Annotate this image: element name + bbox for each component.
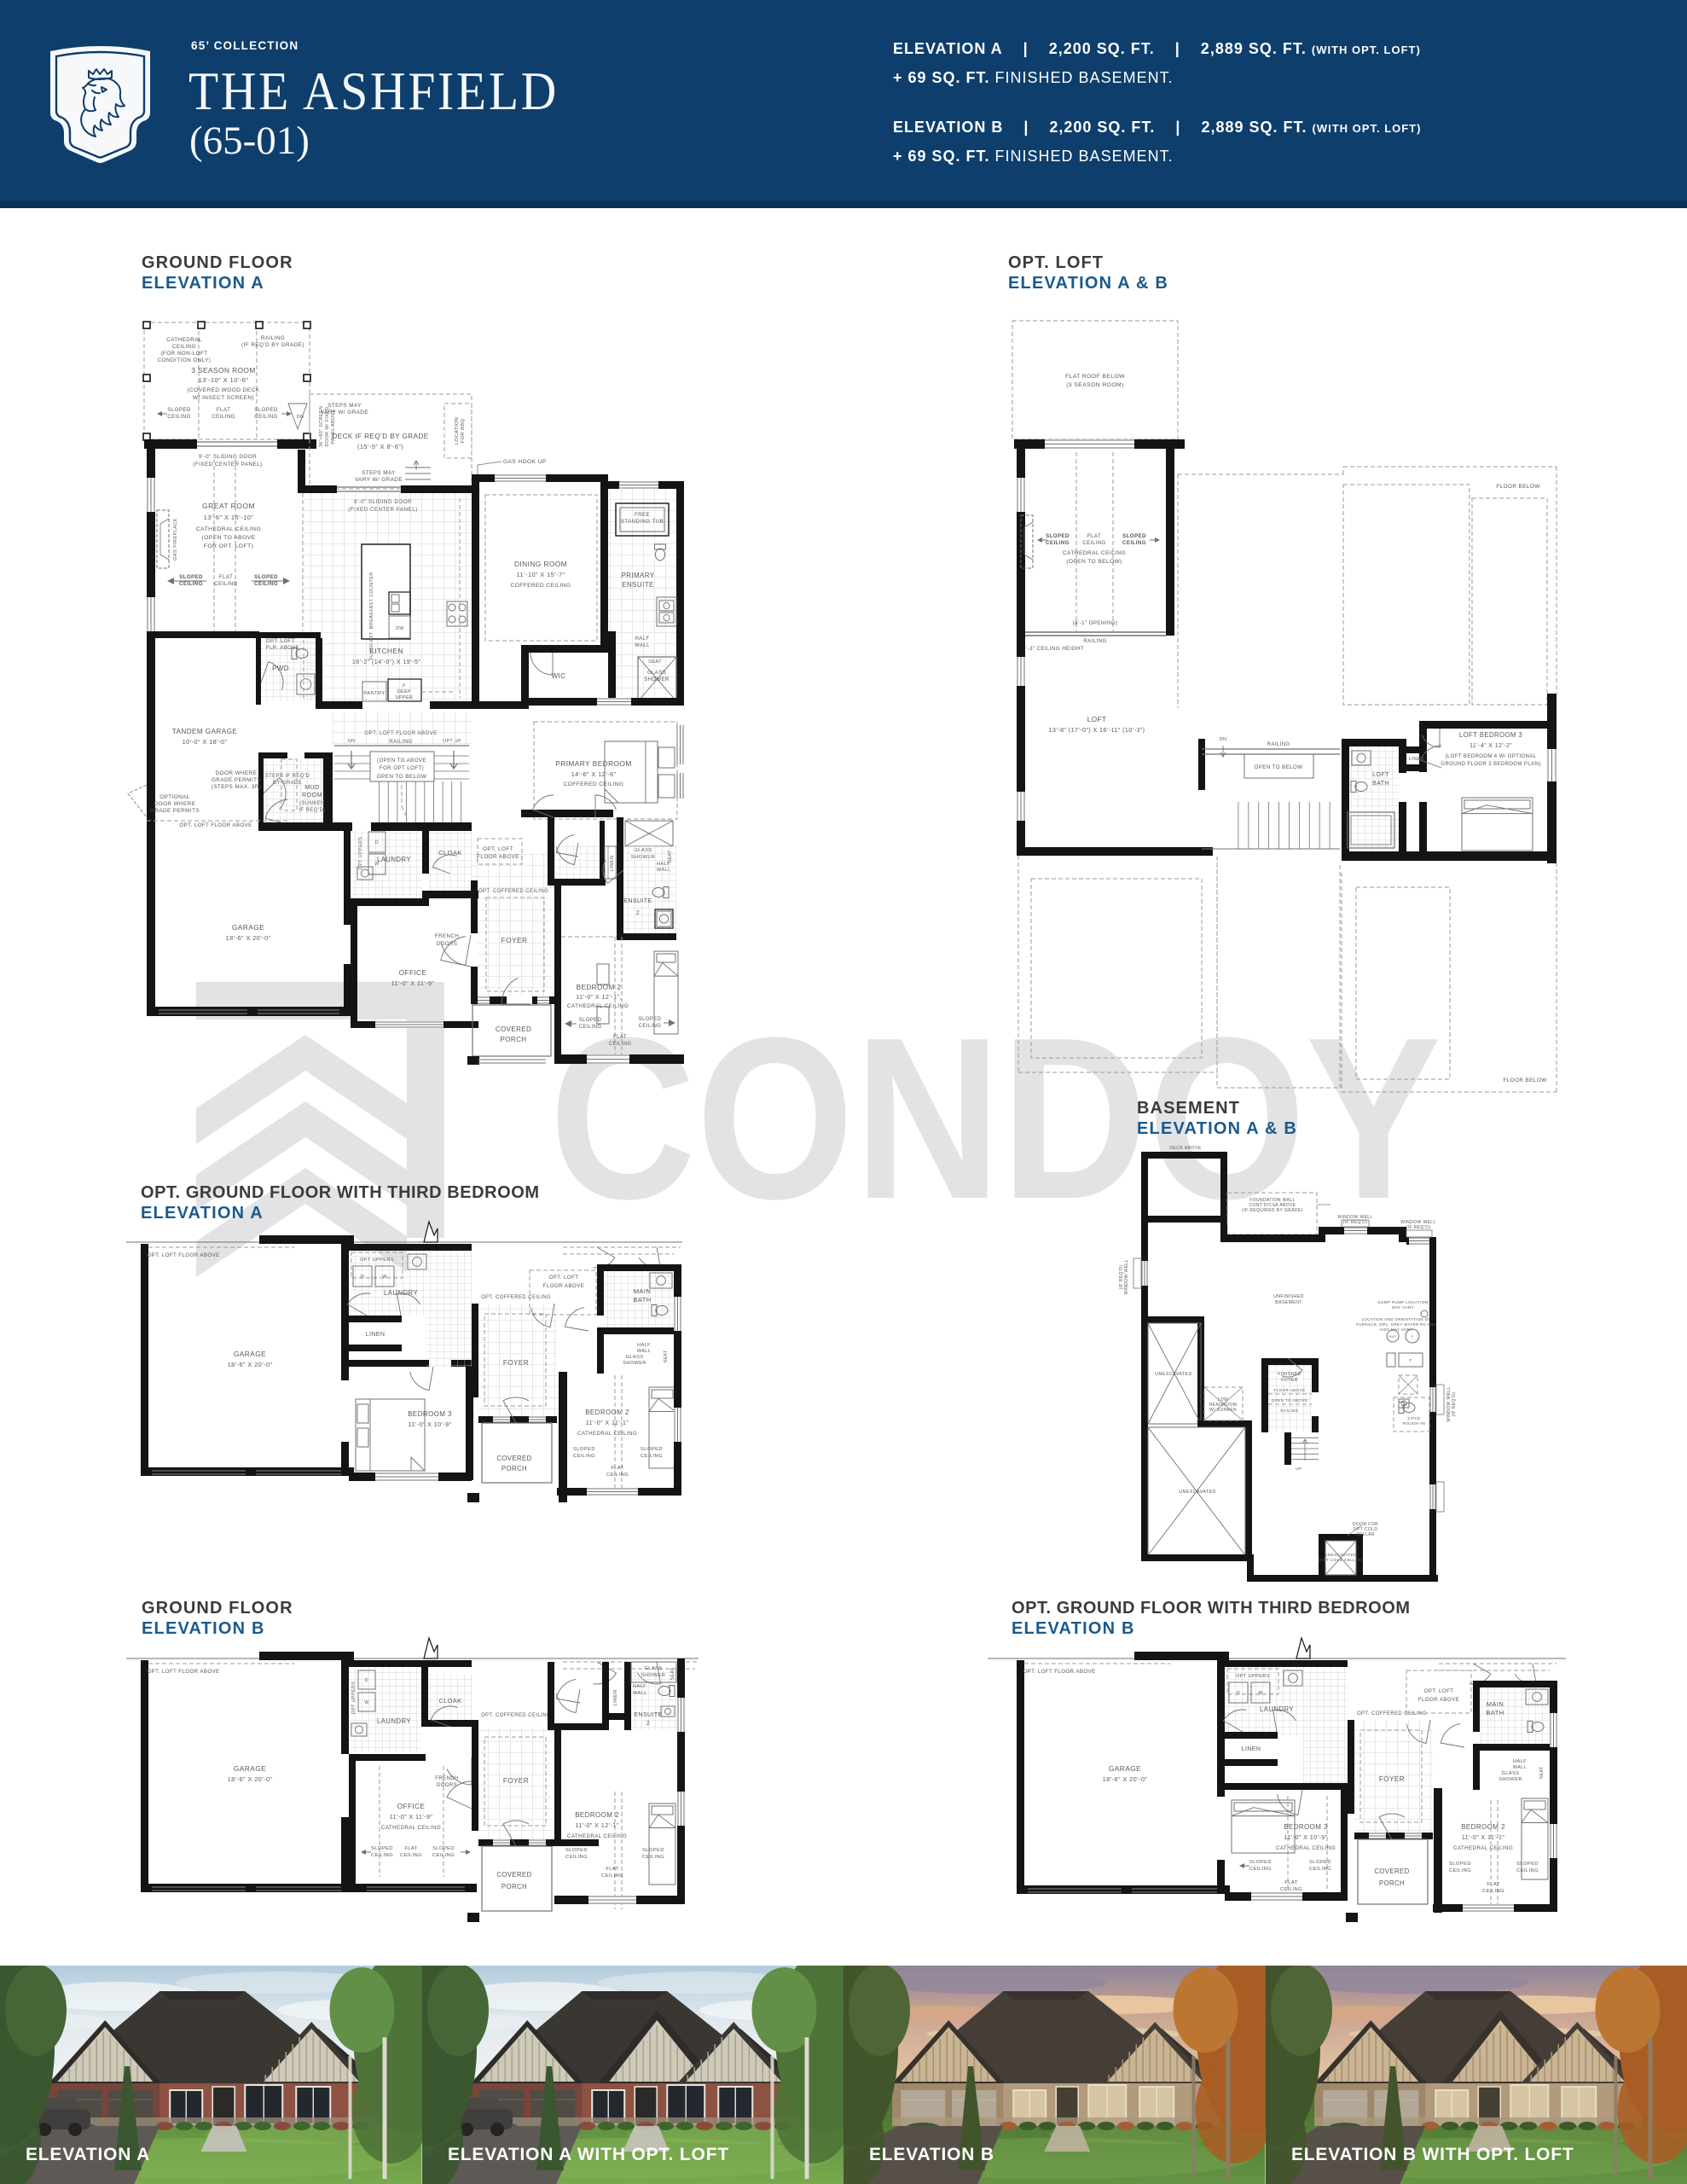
- svg-text:SLOPED: SLOPED: [432, 1846, 455, 1851]
- svg-text:CATHEDRAL CEILING: CATHEDRAL CEILING: [1453, 1845, 1513, 1851]
- svg-text:W: W: [1258, 1691, 1263, 1696]
- svg-text:COVERED: COVERED: [496, 1871, 531, 1879]
- svg-text:FOYER: FOYER: [1379, 1775, 1405, 1783]
- svg-text:PWD: PWD: [272, 665, 289, 672]
- svg-text:16’-2” (14’-0”) X 19’-5”: 16’-2” (14’-0”) X 19’-5”: [352, 658, 421, 665]
- svg-text:SLOPED: SLOPED: [642, 1848, 664, 1853]
- svg-text:CEILING: CEILING: [1449, 1868, 1471, 1873]
- svg-text:3 SEASON ROOM: 3 SEASON ROOM: [191, 366, 255, 375]
- svg-text:BATH: BATH: [1486, 1709, 1504, 1716]
- svg-text:PANTRY: PANTRY: [363, 691, 385, 696]
- svg-text:OPT UPPERS: OPT UPPERS: [351, 1682, 357, 1715]
- svg-text:(STEPS MAX. 3R): (STEPS MAX. 3R): [212, 784, 262, 790]
- svg-text:DOOR WHERE: DOOR WHERE: [216, 770, 258, 776]
- svg-text:11’-0” X 11’-1”: 11’-0” X 11’-1”: [1462, 1833, 1505, 1841]
- svg-text:SLOPED: SLOPED: [167, 407, 191, 413]
- svg-text:FLAT ROOF BELOW: FLAT ROOF BELOW: [1065, 374, 1125, 380]
- svg-text:SLOPED: SLOPED: [565, 1848, 588, 1853]
- svg-text:(OPEN TO ABOVE: (OPEN TO ABOVE: [377, 758, 426, 764]
- svg-text:OPEN TO ABOVE: OPEN TO ABOVE: [1272, 1398, 1308, 1403]
- svg-text:SHOWER: SHOWER: [641, 1673, 666, 1678]
- svg-text:(OPT COLD CELLAR): (OPT COLD CELLAR): [1319, 1558, 1363, 1562]
- svg-text:GREAT ROOM: GREAT ROOM: [202, 502, 255, 510]
- svg-text:BEDROOM 2: BEDROOM 2: [575, 1811, 619, 1819]
- svg-text:HWT: HWT: [1388, 1335, 1397, 1339]
- svg-text:18’-6” X 20’-0”: 18’-6” X 20’-0”: [228, 1775, 273, 1783]
- svg-text:UNEXCAVATED: UNEXCAVATED: [1179, 1490, 1216, 1495]
- svg-text:CELLAR: CELLAR: [1356, 1532, 1375, 1537]
- svg-text:FLOOR BELOW: FLOOR BELOW: [1496, 484, 1540, 490]
- svg-text:DEEP: DEEP: [397, 689, 411, 694]
- svg-text:W/ INSECT SCREEN): W/ INSECT SCREEN): [193, 395, 254, 401]
- svg-text:CEILING: CEILING: [1482, 1889, 1504, 1894]
- svg-text:W/ SUNKEN: W/ SUNKEN: [1209, 1408, 1237, 1413]
- svg-text:CEILING: CEILING: [1046, 540, 1070, 546]
- svg-text:CEILING: CEILING: [212, 414, 235, 420]
- svg-text:OPT. LOFT FLOOR ABOVE: OPT. LOFT FLOOR ABOVE: [147, 1669, 219, 1675]
- svg-text:OPEN TO BELOW: OPEN TO BELOW: [1255, 764, 1303, 770]
- svg-text:FURNACE, DRV, GREY WATER RV AN: FURNACE, DRV, GREY WATER RV AND: [1356, 1322, 1436, 1327]
- svg-text:BEDROOM 3: BEDROOM 3: [1284, 1823, 1328, 1831]
- svg-text:CEILING: CEILING: [579, 1025, 602, 1030]
- svg-text:SLOPED: SLOPED: [179, 574, 203, 580]
- svg-text:(IF REQUIRED BY GRADE): (IF REQUIRED BY GRADE): [1242, 1208, 1303, 1213]
- svg-text:F: F: [1409, 1358, 1412, 1362]
- svg-text:CATHEDRAL CEILING: CATHEDRAL CEILING: [1063, 550, 1126, 556]
- svg-text:11’-0” X 11’-9”: 11’-0” X 11’-9”: [391, 979, 435, 987]
- svg-text:SEAT: SEAT: [664, 1350, 669, 1362]
- svg-text:GRADE PERMITS: GRADE PERMITS: [212, 777, 261, 783]
- svg-text:ENSUITE: ENSUITE: [622, 581, 653, 589]
- svg-text:OFFICE: OFFICE: [397, 1803, 426, 1810]
- svg-text:GAS FIREPLACE: GAS FIREPLACE: [173, 518, 178, 561]
- svg-text:RAILING: RAILING: [1083, 638, 1107, 644]
- svg-text:CEILING: CEILING: [642, 1855, 664, 1860]
- svg-text:SHOWER: SHOWER: [623, 1361, 646, 1366]
- svg-text:HALF: HALF: [633, 1684, 646, 1689]
- svg-text:GLASS: GLASS: [1502, 1771, 1520, 1776]
- svg-text:GROUND FLOOR 3 BEDROOM PLAN): GROUND FLOOR 3 BEDROOM PLAN): [1441, 762, 1540, 767]
- svg-text:FREE: FREE: [635, 512, 650, 518]
- svg-text:CEILING: CEILING: [1516, 1868, 1539, 1873]
- svg-text:CEILING: CEILING: [609, 1042, 632, 1047]
- svg-text:SLOPED: SLOPED: [579, 1018, 602, 1023]
- svg-text:FOYER: FOYER: [503, 1359, 529, 1367]
- svg-text:ELEVATION B WITH OPT. LOFT: ELEVATION B WITH OPT. LOFT: [1291, 2145, 1574, 2164]
- svg-text:DINING ROOM: DINING ROOM: [514, 560, 567, 568]
- svg-text:OPT. LOFT: OPT. LOFT: [483, 846, 513, 852]
- svg-text:14’-6” X 12’-6”: 14’-6” X 12’-6”: [571, 770, 617, 778]
- svg-text:36”×80” SCREEN: 36”×80” SCREEN: [319, 406, 324, 447]
- svg-text:CEILING: CEILING: [573, 1454, 595, 1459]
- svg-text:GARAGE: GARAGE: [1109, 1764, 1141, 1773]
- svg-text:OPT. LOFT FLOOR ABOVE: OPT. LOFT FLOOR ABOVE: [179, 822, 252, 828]
- svg-text:SLOPED: SLOPED: [371, 1846, 393, 1851]
- svg-text:FOYER: FOYER: [501, 936, 528, 944]
- svg-text:F: F: [403, 683, 406, 688]
- svg-text:GARAGE: GARAGE: [232, 923, 264, 932]
- svg-text:(IF REQ’D): (IF REQ’D): [1406, 1225, 1431, 1230]
- svg-text:SEAT: SEAT: [1539, 1766, 1545, 1779]
- svg-text:SLOPED: SLOPED: [1449, 1862, 1471, 1867]
- svg-text:BY GRADE: BY GRADE: [273, 781, 302, 786]
- svg-text:FOR OPT LOFT): FOR OPT LOFT): [380, 765, 424, 771]
- svg-text:FLAT: FLAT: [1087, 533, 1101, 539]
- svg-text:(8’-1” OPENING): (8’-1” OPENING): [1073, 620, 1118, 626]
- svg-text:FOR BBQ: FOR BBQ: [461, 418, 466, 443]
- svg-text:CEILING: CEILING: [432, 1853, 455, 1858]
- svg-text:CEILING: CEILING: [179, 581, 203, 587]
- svg-text:WALL: WALL: [1513, 1765, 1528, 1770]
- svg-text:W: W: [364, 1700, 368, 1705]
- svg-text:FLAT: FLAT: [217, 407, 230, 413]
- svg-text:SLOPED: SLOPED: [254, 574, 278, 580]
- svg-text:GLASS: GLASS: [626, 1355, 644, 1360]
- svg-text:CEILING: CEILING: [167, 414, 191, 420]
- svg-text:FOYER: FOYER: [1281, 1378, 1298, 1383]
- svg-text:BATH: BATH: [1372, 781, 1389, 787]
- svg-text:(OPEN TO ABOVE: (OPEN TO ABOVE: [201, 535, 255, 541]
- svg-text:HALF: HALF: [637, 1343, 651, 1348]
- svg-text:LAUNDRY: LAUNDRY: [377, 856, 411, 863]
- svg-text:UPPER: UPPER: [396, 695, 414, 700]
- svg-text:OPT. LOFT: OPT. LOFT: [549, 1275, 579, 1281]
- svg-text:UNEXCAVATED: UNEXCAVATED: [1155, 1372, 1192, 1377]
- svg-text:OPT UPPERS: OPT UPPERS: [1236, 1674, 1270, 1679]
- svg-text:(IF REQ’D): (IF REQ’D): [1452, 1392, 1457, 1417]
- svg-text:(IF REQ’D): (IF REQ’D): [1343, 1220, 1368, 1225]
- svg-text:D: D: [1237, 1691, 1240, 1696]
- svg-text:CATHEDRAL CEILING: CATHEDRAL CEILING: [577, 1431, 637, 1437]
- svg-text:BEDROOM 2: BEDROOM 2: [1461, 1823, 1505, 1831]
- svg-text:GRADE PERMITS: GRADE PERMITS: [150, 808, 200, 814]
- svg-text:OPT. COFFERED CEILING: OPT. COFFERED CEILING: [481, 1295, 551, 1300]
- svg-text:OPT. LOFT FLOOR ABOVE: OPT. LOFT FLOOR ABOVE: [1023, 1669, 1095, 1675]
- svg-text:SLOPED: SLOPED: [1046, 533, 1070, 539]
- svg-text:OPT. LOFT: OPT. LOFT: [1424, 1688, 1454, 1694]
- svg-text:TANDEM GARAGE: TANDEM GARAGE: [172, 728, 238, 735]
- svg-text:COVERED: COVERED: [1374, 1867, 1409, 1875]
- svg-text:ROOM: ROOM: [302, 791, 322, 799]
- svg-text:11’-0” X 10’-9”: 11’-0” X 10’-9”: [1284, 1833, 1327, 1841]
- svg-text:CATHEDRAL CEILING: CATHEDRAL CEILING: [196, 526, 261, 532]
- svg-text:CONDITION ONLY): CONDITION ONLY): [158, 357, 212, 363]
- svg-text:OPT. COFFERED CEILING: OPT. COFFERED CEILING: [481, 1713, 551, 1718]
- svg-text:SLOPED: SLOPED: [639, 1017, 662, 1022]
- svg-text:CEILING: CEILING: [172, 344, 196, 350]
- svg-text:LAUNDRY: LAUNDRY: [1260, 1705, 1294, 1713]
- svg-text:GLASS: GLASS: [647, 671, 666, 676]
- svg-text:HWT MAY VARY: HWT MAY VARY: [1380, 1327, 1412, 1332]
- svg-text:LAUNDRY: LAUNDRY: [384, 1289, 418, 1297]
- svg-text:SEAT: SEAT: [648, 659, 662, 665]
- svg-text:DOOR W/ FIXED: DOOR W/ FIXED: [325, 407, 330, 447]
- svg-text:18’-6” X 20’-0”: 18’-6” X 20’-0”: [226, 934, 271, 942]
- svg-text:SEAT: SEAT: [670, 1667, 675, 1680]
- svg-text:SLOPED: SLOPED: [254, 407, 278, 413]
- svg-text:STANDING TUB: STANDING TUB: [621, 519, 664, 525]
- svg-text:CEILING: CEILING: [1122, 540, 1146, 546]
- svg-text:BATH: BATH: [633, 1296, 651, 1304]
- svg-text:COFFERED CEILING: COFFERED CEILING: [564, 781, 624, 787]
- svg-text:LINEN: LINEN: [1242, 1746, 1261, 1752]
- svg-text:FLUSH EXT. BREAKFAST COUNTER: FLUSH EXT. BREAKFAST COUNTER: [369, 572, 374, 659]
- svg-text:CATHEDRAL: CATHEDRAL: [166, 337, 202, 343]
- svg-text:LOFT: LOFT: [1087, 716, 1107, 723]
- svg-text:(COVERED WOOD DECK: (COVERED WOOD DECK: [187, 387, 259, 393]
- svg-text:LINEN: LINEN: [610, 855, 615, 871]
- svg-text:2: 2: [636, 910, 640, 916]
- svg-text:(SUNKEN: (SUNKEN: [299, 801, 325, 806]
- svg-text:MAY VARY: MAY VARY: [1392, 1305, 1414, 1310]
- svg-text:IF REQ’D): IF REQ’D): [299, 808, 325, 813]
- svg-text:COFFERED CEILING: COFFERED CEILING: [511, 583, 571, 589]
- svg-text:11’-0” X 11’-1”: 11’-0” X 11’-1”: [586, 1419, 629, 1426]
- svg-text:HALF: HALF: [1513, 1759, 1527, 1764]
- svg-text:3-PCE: 3-PCE: [1407, 1416, 1421, 1420]
- svg-text:OPT. COFFERED CEILING: OPT. COFFERED CEILING: [1357, 1711, 1427, 1716]
- svg-text:SLOPED: SLOPED: [1122, 533, 1146, 539]
- svg-text:STEPS MAY: STEPS MAY: [328, 403, 362, 409]
- svg-text:WALL: WALL: [635, 643, 650, 648]
- svg-text:FRENCH: FRENCH: [435, 933, 459, 939]
- svg-text:CEILING: CEILING: [371, 1853, 393, 1858]
- svg-text:2: 2: [646, 1721, 650, 1727]
- svg-text:ELEVATION A WITH OPT. LOFT: ELEVATION A WITH OPT. LOFT: [448, 2145, 729, 2164]
- svg-text:GARAGE: GARAGE: [234, 1764, 266, 1773]
- svg-text:PORCH: PORCH: [501, 1883, 527, 1891]
- svg-text:D: D: [375, 840, 379, 845]
- svg-text:PORCH: PORCH: [1379, 1879, 1405, 1887]
- svg-text:(FOR NON-LOFT: (FOR NON-LOFT: [160, 351, 207, 357]
- svg-text:11’-0” X 10’-9”: 11’-0” X 10’-9”: [408, 1420, 451, 1428]
- svg-text:11’-0” X 12’-1”: 11’-0” X 12’-1”: [575, 1821, 618, 1829]
- svg-text:F: F: [1412, 1334, 1414, 1339]
- svg-text:FLAT: FLAT: [1284, 1880, 1297, 1885]
- svg-text:PRIMARY BEDROOM: PRIMARY BEDROOM: [555, 759, 631, 768]
- svg-text:OPT UPPERS: OPT UPPERS: [358, 837, 363, 870]
- svg-text:D: D: [365, 1678, 368, 1683]
- svg-text:FLAT: FLAT: [613, 1035, 627, 1040]
- svg-text:SLOPED: SLOPED: [1249, 1860, 1272, 1865]
- svg-text:SLOPED: SLOPED: [573, 1447, 595, 1452]
- svg-text:CEILING: CEILING: [641, 1454, 663, 1459]
- svg-text:LINEN: LINEN: [366, 1332, 386, 1338]
- svg-text:PORCH: PORCH: [501, 1036, 527, 1043]
- svg-text:(15’-5” X 8’-6”): (15’-5” X 8’-6”): [357, 443, 403, 450]
- svg-text:(LOFT BEDROOM 4 W/ OPTIONAL: (LOFT BEDROOM 4 W/ OPTIONAL: [1446, 754, 1537, 759]
- svg-text:CEILING: CEILING: [1082, 540, 1106, 546]
- svg-text:WALL: WALL: [637, 1349, 652, 1354]
- svg-text:FLOOR ABOVE: FLOOR ABOVE: [1418, 1697, 1459, 1703]
- svg-text:OPTIONAL: OPTIONAL: [159, 794, 190, 800]
- svg-text:OPT. COFFERED CEILING: OPT. COFFERED CEILING: [478, 889, 548, 894]
- svg-text:8’-3” CEILING HEIGHT: 8’-3” CEILING HEIGHT: [1023, 646, 1084, 652]
- svg-text:FOYER: FOYER: [503, 1777, 529, 1785]
- svg-text:18’-6” X 20’-0”: 18’-6” X 20’-0”: [228, 1361, 273, 1368]
- svg-text:FLOOR ABOVE: FLOOR ABOVE: [1273, 1388, 1305, 1392]
- svg-text:SLOPED: SLOPED: [641, 1447, 663, 1452]
- svg-text:DECK ABOVE: DECK ABOVE: [1169, 1146, 1202, 1151]
- svg-text:COVERED: COVERED: [496, 1455, 531, 1462]
- svg-text:(IF REQ’D BY GRADE): (IF REQ’D BY GRADE): [241, 342, 304, 348]
- svg-text:FLR. ABOVE: FLR. ABOVE: [266, 646, 299, 651]
- svg-text:FLAT: FLAT: [219, 574, 233, 580]
- svg-text:SLOPED: SLOPED: [1309, 1860, 1331, 1865]
- svg-text:CEILING: CEILING: [1280, 1887, 1302, 1892]
- svg-text:DOORS: DOORS: [437, 941, 458, 947]
- svg-text:(FIXED CENTER PANEL): (FIXED CENTER PANEL): [193, 462, 262, 468]
- svg-text:UNFINISHED: UNFINISHED: [1273, 1294, 1304, 1299]
- svg-text:FLAT: FLAT: [1487, 1882, 1499, 1887]
- svg-text:RAILING: RAILING: [261, 335, 285, 341]
- svg-text:DW: DW: [396, 626, 403, 631]
- svg-text:FOR OPT. LOFT): FOR OPT. LOFT): [204, 543, 253, 549]
- svg-text:10’-0” X 18’-0”: 10’-0” X 18’-0”: [183, 738, 228, 746]
- svg-text:OPEN TO BELOW: OPEN TO BELOW: [377, 774, 427, 780]
- svg-text:FLOOR BELOW: FLOOR BELOW: [1503, 1077, 1547, 1083]
- svg-text:MUD: MUD: [304, 783, 320, 791]
- svg-text:GLASS: GLASS: [644, 1666, 662, 1671]
- svg-text:MAIN: MAIN: [634, 1287, 652, 1295]
- svg-text:DN: DN: [1220, 737, 1227, 742]
- svg-text:CEILING: CEILING: [606, 1472, 629, 1478]
- svg-text:CEILING: CEILING: [1249, 1867, 1272, 1872]
- svg-text:CEILING: CEILING: [1309, 1867, 1331, 1872]
- svg-text:OPT. LOFT: OPT. LOFT: [266, 639, 295, 644]
- svg-text:11’-10” X 15’-7”: 11’-10” X 15’-7”: [517, 571, 565, 578]
- svg-text:OFFICE: OFFICE: [399, 969, 427, 977]
- svg-text:FLAT: FLAT: [404, 1846, 417, 1851]
- svg-text:GAS HOOK UP: GAS HOOK UP: [503, 459, 547, 465]
- svg-text:STEPS MAY: STEPS MAY: [362, 470, 396, 476]
- svg-text:VARY W/ GRADE: VARY W/ GRADE: [355, 477, 403, 483]
- svg-text:DOOR WHERE: DOOR WHERE: [154, 801, 196, 807]
- svg-text:STEPS IF REQ’D: STEPS IF REQ’D: [265, 774, 310, 779]
- svg-text:13’-10” X 10’-6”: 13’-10” X 10’-6”: [199, 376, 249, 384]
- svg-text:FLOOR ABOVE: FLOOR ABOVE: [543, 1283, 584, 1289]
- svg-text:UNEXCAVATED: UNEXCAVATED: [1325, 1553, 1357, 1557]
- svg-text:CLOAK: CLOAK: [438, 1697, 461, 1705]
- svg-text:11’-4” X 12’-2”: 11’-4” X 12’-2”: [1470, 743, 1512, 749]
- svg-text:ROUGH-IN: ROUGH-IN: [1403, 1421, 1425, 1426]
- svg-text:UP: UP: [1296, 1467, 1301, 1472]
- svg-text:OPT. LOFT FLOOR ABOVE: OPT. LOFT FLOOR ABOVE: [147, 1252, 219, 1258]
- svg-text:DN: DN: [297, 415, 304, 420]
- svg-text:PORCH: PORCH: [501, 1465, 527, 1472]
- svg-text:GARAGE: GARAGE: [234, 1350, 266, 1358]
- svg-text:CEILING: CEILING: [254, 414, 278, 420]
- svg-text:SLOPED: SLOPED: [1516, 1862, 1539, 1867]
- svg-text:PANEL ABOVE: PANEL ABOVE: [331, 409, 336, 444]
- svg-text:BASEMENT: BASEMENT: [1275, 1300, 1302, 1305]
- svg-text:FLAT: FLAT: [611, 1466, 623, 1471]
- svg-text:OPT UPPERS: OPT UPPERS: [360, 1258, 394, 1263]
- svg-text:18’-6” X 20’-0”: 18’-6” X 20’-0”: [1103, 1775, 1148, 1783]
- svg-text:SUMP PUMP LOCATION: SUMP PUMP LOCATION: [1377, 1300, 1428, 1304]
- svg-text:9’-0” SLIDING DOOR: 9’-0” SLIDING DOOR: [199, 454, 257, 460]
- svg-text:CEILING: CEILING: [565, 1855, 588, 1860]
- svg-text:RAILING: RAILING: [1280, 1409, 1298, 1413]
- svg-text:HALF: HALF: [635, 636, 650, 642]
- svg-text:LINEN: LINEN: [613, 1689, 618, 1705]
- svg-text:BEDROOM 2: BEDROOM 2: [585, 1409, 629, 1416]
- svg-text:13’-8” (17’-0”) X 16’-11” (10: 13’-8” (17’-0”) X 16’-11” (10’-3”): [1049, 726, 1145, 734]
- svg-text:CEILING: CEILING: [601, 1873, 623, 1879]
- svg-text:DECK IF REQ’D BY GRADE: DECK IF REQ’D BY GRADE: [332, 433, 428, 440]
- svg-text:ENSUITE: ENSUITE: [634, 1712, 662, 1718]
- svg-text:ENSUITE: ENSUITE: [623, 898, 652, 904]
- svg-text:MAIN: MAIN: [1487, 1700, 1504, 1708]
- svg-text:D: D: [361, 1275, 364, 1280]
- svg-text:LOFT BEDROOM 3: LOFT BEDROOM 3: [1459, 731, 1522, 739]
- svg-text:CATHEDRAL CEILING: CATHEDRAL CEILING: [567, 1833, 627, 1839]
- svg-text:WIC: WIC: [552, 672, 566, 680]
- svg-text:KITCHEN: KITCHEN: [369, 647, 403, 655]
- svg-text:ELEVATION B: ELEVATION B: [869, 2145, 994, 2164]
- svg-text:CATHEDRAL CEILING: CATHEDRAL CEILING: [381, 1825, 441, 1831]
- svg-text:(IF REQ’D): (IF REQ’D): [1119, 1265, 1124, 1290]
- svg-text:CEILING: CEILING: [639, 1024, 662, 1029]
- svg-text:CEILING: CEILING: [214, 581, 238, 587]
- svg-text:WINDOW WELL: WINDOW WELL: [1124, 1259, 1129, 1294]
- svg-text:ELEVATION A: ELEVATION A: [26, 2145, 150, 2164]
- svg-text:COVERED: COVERED: [496, 1025, 531, 1033]
- svg-text:(OPEN TO BELOW): (OPEN TO BELOW): [1066, 559, 1122, 565]
- svg-text:BEDROOM 3: BEDROOM 3: [408, 1410, 452, 1418]
- svg-text:W: W: [382, 1275, 387, 1280]
- svg-text:CEILING: CEILING: [254, 581, 278, 587]
- svg-text:LAUNDRY: LAUNDRY: [377, 1717, 411, 1725]
- svg-text:SHOWER: SHOWER: [1499, 1777, 1522, 1782]
- svg-text:13’-6” X 16’-10”: 13’-6” X 16’-10”: [204, 514, 254, 521]
- svg-text:LOCATION: LOCATION: [455, 417, 460, 444]
- svg-text:RAILING: RAILING: [1267, 742, 1290, 747]
- svg-text:PRIMARY: PRIMARY: [621, 572, 654, 579]
- svg-text:LOCATION AND ORIENTATION OF: LOCATION AND ORIENTATION OF: [1361, 1317, 1430, 1321]
- svg-text:CEILING: CEILING: [400, 1853, 422, 1858]
- svg-text:FLAT: FLAT: [606, 1867, 618, 1872]
- svg-text:11’-0” X 11’-9”: 11’-0” X 11’-9”: [390, 1813, 433, 1821]
- svg-text:SHOWER: SHOWER: [644, 677, 670, 682]
- svg-text:(3 SEASON ROOM): (3 SEASON ROOM): [1066, 382, 1124, 388]
- svg-text:CLOAK: CLOAK: [438, 849, 462, 857]
- svg-text:LOFT: LOFT: [1372, 772, 1389, 778]
- svg-text:WALL: WALL: [633, 1691, 647, 1696]
